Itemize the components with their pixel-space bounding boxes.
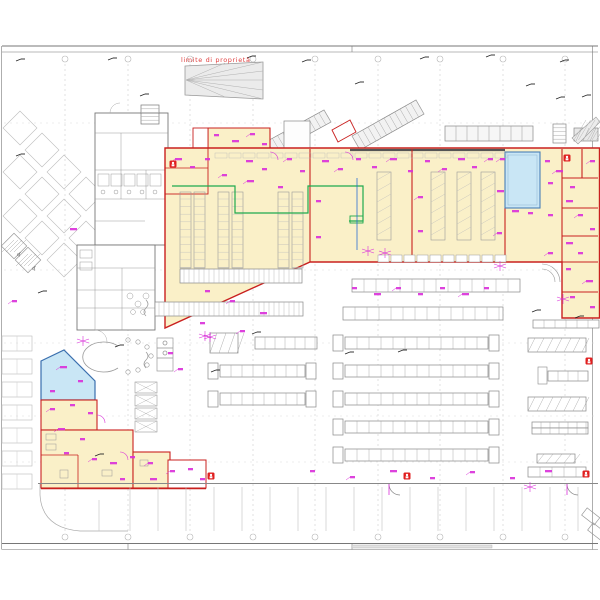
fire-extinguisher-icon (404, 473, 411, 480)
car-symbol (588, 523, 600, 540)
fire-extinguisher-icon (564, 155, 571, 162)
office-block (77, 103, 168, 330)
car-symbol (582, 508, 600, 525)
storage-stack (135, 382, 157, 432)
south-doors (389, 484, 600, 540)
fire-extinguisher-icon (208, 473, 215, 480)
fire-extinguisher-icon (583, 471, 590, 478)
south-facade (38, 484, 598, 532)
southwest-building (41, 350, 206, 489)
accessible-parking-icon: ♿ (30, 264, 39, 273)
accessible-parking-icon: ♿ (15, 250, 24, 259)
property-line-label: limite di proprietà (181, 56, 251, 64)
floor-plan-canvas: ♿ ♿ (0, 0, 600, 600)
parking-southwest (2, 336, 32, 489)
water-area (41, 350, 95, 400)
spiral-ramp (542, 264, 560, 282)
main-hall (165, 121, 600, 328)
cold-room (505, 152, 540, 208)
fire-extinguisher-icon (586, 358, 593, 365)
fire-extinguisher-icon (170, 161, 177, 168)
floor-plan-page: ♿ ♿ (0, 0, 600, 600)
